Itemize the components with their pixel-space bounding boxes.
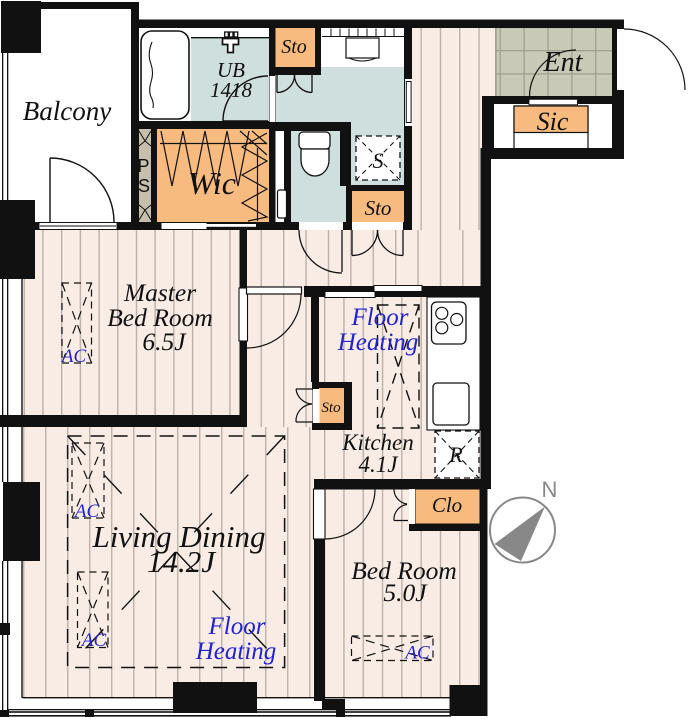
svg-text:R: R: [448, 442, 463, 467]
svg-text:Balcony: Balcony: [23, 96, 111, 126]
svg-text:Clo: Clo: [432, 493, 462, 517]
svg-text:N: N: [542, 477, 558, 502]
svg-text:Wic: Wic: [188, 165, 236, 201]
svg-text:Sic: Sic: [537, 107, 569, 136]
svg-text:1418: 1418: [210, 78, 253, 102]
svg-text:Heating: Heating: [195, 638, 277, 665]
svg-text:AC: AC: [60, 346, 87, 367]
svg-text:S: S: [373, 148, 384, 173]
svg-text:Sto: Sto: [321, 400, 341, 416]
svg-text:AC: AC: [80, 630, 107, 651]
svg-text:AC: AC: [403, 643, 430, 664]
svg-text:Floor: Floor: [208, 613, 266, 640]
svg-text:Ent: Ent: [543, 47, 584, 78]
svg-text:Heating: Heating: [337, 329, 419, 356]
svg-text:6.5J: 6.5J: [142, 327, 187, 356]
svg-text:P: P: [137, 156, 149, 176]
svg-text:S: S: [138, 176, 150, 196]
svg-text:Floor: Floor: [351, 304, 409, 331]
svg-text:4.1J: 4.1J: [359, 452, 400, 477]
svg-text:Sto: Sto: [281, 36, 307, 58]
svg-text:AC: AC: [73, 501, 100, 522]
svg-text:Sto: Sto: [365, 196, 392, 220]
svg-text:14.2J: 14.2J: [147, 544, 216, 579]
svg-text:5.0J: 5.0J: [383, 578, 428, 607]
